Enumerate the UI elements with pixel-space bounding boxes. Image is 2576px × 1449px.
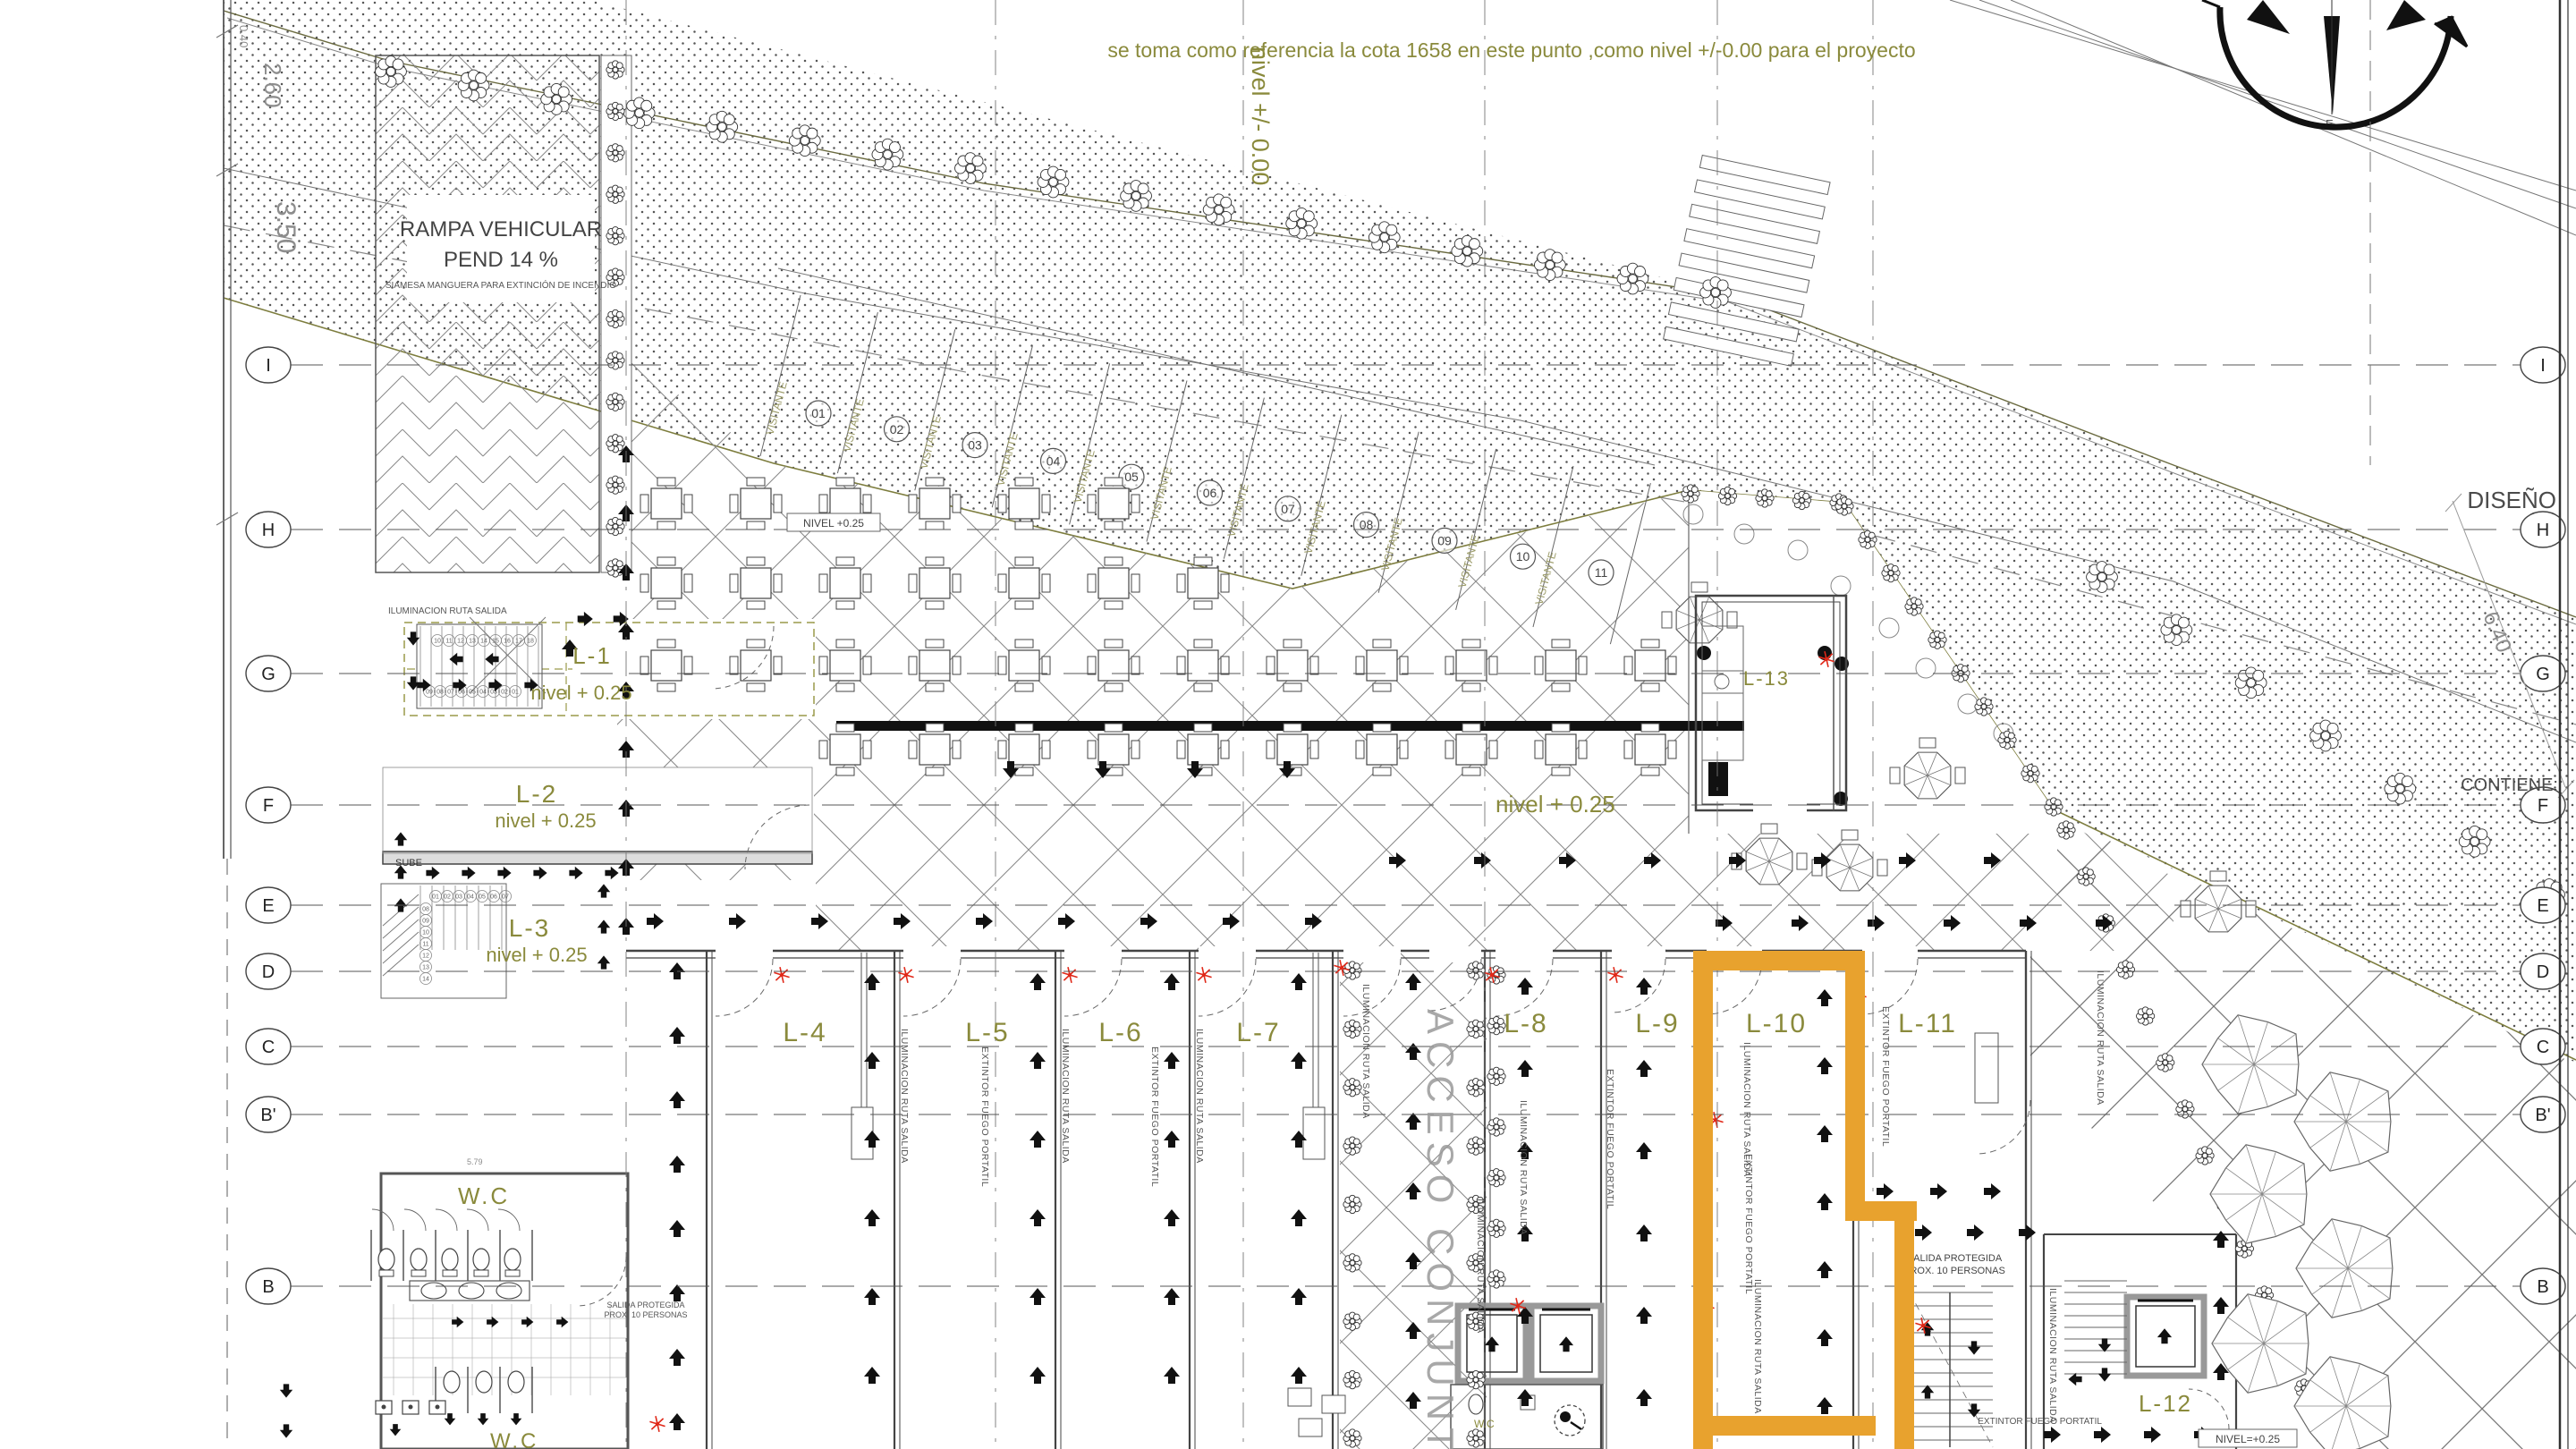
svg-text:02: 02 <box>890 422 904 436</box>
dim-260: 2.60 <box>259 63 286 108</box>
ilum-l1-note: ILUMINACION RUTA SALIDA <box>388 606 507 616</box>
svg-text:01: 01 <box>512 690 519 696</box>
svg-text:11: 11 <box>422 942 428 948</box>
ramp-label-2: PEND 14 % <box>444 248 558 272</box>
svg-text:L-8: L-8 <box>1504 1009 1547 1038</box>
svg-text:09: 09 <box>426 690 433 696</box>
svg-text:08: 08 <box>422 907 429 913</box>
nivel-box-2: NIVEL=+0.25 <box>2199 1429 2297 1447</box>
svg-text:I: I <box>2540 356 2546 376</box>
svg-text:L-12: L-12 <box>2139 1390 2192 1417</box>
svg-text:EXTINTOR FUEGO PORTATIL: EXTINTOR FUEGO PORTATIL <box>979 1046 990 1187</box>
svg-text:ILUMINACION RUTA SALIDA: ILUMINACION RUTA SALIDA <box>1060 1029 1071 1164</box>
svg-text:ILUMINACION RUTA SALIDA: ILUMINACION RUTA SALIDA <box>1475 1199 1486 1334</box>
svg-text:nivel + 0.25: nivel + 0.25 <box>486 944 587 966</box>
highlighted-unit-L-10-border <box>1693 1416 1876 1436</box>
svg-text:04: 04 <box>467 894 474 901</box>
svg-text:EXTINTOR FUEGO PORTATIL: EXTINTOR FUEGO PORTATIL <box>1149 1046 1160 1187</box>
svg-text:ILUMINACION RUTA SALIDA: ILUMINACION RUTA SALIDA <box>1360 984 1371 1119</box>
svg-text:07: 07 <box>502 894 509 901</box>
svg-text:ILUMINACION RUTA SALIDA: ILUMINACION RUTA SALIDA <box>1752 1279 1763 1414</box>
acceso-conjunto-label: ACCESO CONJUNTO <box>1419 1009 1462 1449</box>
unit-label-L-9: L-9 <box>1635 1009 1679 1038</box>
svg-text:L-1: L-1 <box>572 642 612 669</box>
svg-text:02: 02 <box>444 894 451 901</box>
svg-text:11: 11 <box>1595 565 1608 580</box>
svg-text:01: 01 <box>811 406 826 420</box>
svg-text:C: C <box>262 1038 275 1057</box>
unit-label-L-13: L-13 <box>1743 667 1790 690</box>
svg-text:10: 10 <box>1516 549 1530 563</box>
svg-text:05: 05 <box>479 894 486 901</box>
svg-text:13: 13 <box>469 639 476 645</box>
svg-text:03: 03 <box>968 438 982 453</box>
salida-protegida-1a: SALIDA PROTEGIDA <box>1907 1253 2003 1264</box>
svg-text:EXTINTOR FUEGO PORTATIL: EXTINTOR FUEGO PORTATIL <box>1743 1154 1754 1294</box>
sube-label: SUBE <box>395 858 422 869</box>
svg-text:D: D <box>2537 962 2549 982</box>
svg-text:12: 12 <box>457 639 464 645</box>
svg-text:18: 18 <box>527 639 534 645</box>
site-plan-drawing: 01VISITANTE02VISITANTE03VISITANTE04VISIT… <box>0 0 2576 1449</box>
dim-350: 3.50 <box>271 201 301 253</box>
unit-label-L-8: L-8 <box>1504 1009 1547 1038</box>
diseno-label: DISEÑO <box>2467 487 2556 513</box>
svg-text:EXTINTOR FUEGO PORTATIL: EXTINTOR FUEGO PORTATIL <box>1880 1006 1891 1147</box>
svg-text:NIVEL +0.25: NIVEL +0.25 <box>803 517 864 530</box>
svg-text:11: 11 <box>445 639 452 645</box>
svg-text:ILUMINACION RUTA SALIDA: ILUMINACION RUTA SALIDA <box>1518 1100 1529 1235</box>
nivel-vertical-label: nivel +/- 0.00 <box>1247 47 1274 185</box>
svg-text:05: 05 <box>469 690 476 696</box>
svg-text:H: H <box>2537 521 2549 540</box>
svg-text:05: 05 <box>1124 470 1139 484</box>
svg-text:ILUMINACION RUTA SALIDA: ILUMINACION RUTA SALIDA <box>1194 1029 1205 1164</box>
svg-text:G: G <box>261 665 275 684</box>
svg-text:06: 06 <box>1203 486 1217 500</box>
floor-plan-sheet: 01VISITANTE02VISITANTE03VISITANTE04VISIT… <box>0 0 2576 1449</box>
svg-text:B': B' <box>260 1106 275 1125</box>
salida-protegida-1b: PROX. 10 PERSONAS <box>1903 1266 2005 1276</box>
dim-579: 5.79 <box>467 1157 483 1166</box>
svg-text:15: 15 <box>492 639 499 645</box>
unit-label-L-12: L-12 <box>2139 1390 2192 1417</box>
svg-text:L-11: L-11 <box>1898 1009 1957 1038</box>
svg-text:08: 08 <box>436 690 444 696</box>
svg-text:14: 14 <box>480 639 487 645</box>
compass-icon <box>2202 0 2467 465</box>
svg-text:04: 04 <box>1046 453 1061 468</box>
svg-text:L-9: L-9 <box>1635 1009 1679 1038</box>
svg-text:B: B <box>2537 1277 2548 1297</box>
svg-text:D: D <box>262 962 275 982</box>
svg-text:16: 16 <box>504 639 511 645</box>
svg-text:W.C: W.C <box>1474 1418 1495 1430</box>
svg-text:F: F <box>2538 796 2548 816</box>
highlighted-unit-L-10-border <box>1693 951 1713 1449</box>
unit-label-L-5: L-5 <box>965 1018 1009 1047</box>
svg-text:L-13: L-13 <box>1743 667 1790 690</box>
svg-text:L-6: L-6 <box>1098 1018 1142 1047</box>
svg-text:E: E <box>262 896 274 916</box>
dim-040: 0.40 <box>237 25 250 47</box>
svg-text:09: 09 <box>1437 533 1452 547</box>
svg-text:B': B' <box>2535 1106 2550 1125</box>
unit-label-L-6: L-6 <box>1098 1018 1142 1047</box>
svg-text:14: 14 <box>422 977 429 983</box>
svg-text:L-10: L-10 <box>1746 1009 1807 1038</box>
svg-text:04: 04 <box>479 690 487 696</box>
svg-text:I: I <box>266 356 271 376</box>
unit-label-L-4: L-4 <box>783 1018 826 1047</box>
svg-text:C: C <box>2537 1038 2549 1057</box>
svg-text:ILUMINACION RUTA SALIDA: ILUMINACION RUTA SALIDA <box>2095 970 2106 1106</box>
wc-label-lower: W.C <box>490 1429 538 1449</box>
extintor-l12-note: EXTINTOR FUEGO PORTATIL <box>1978 1417 2102 1427</box>
svg-text:F: F <box>263 796 274 816</box>
ramp-siamesa-note: SIAMESA MANGUERA PARA EXTINCIÓN DE INCEN… <box>386 279 616 291</box>
svg-text:09: 09 <box>422 919 429 925</box>
ramp-label-1: RAMPA VEHICULAR <box>400 217 602 241</box>
reference-note: se toma como referencia la cota 1658 en … <box>1107 38 1915 62</box>
svg-text:07: 07 <box>447 690 454 696</box>
svg-text:L-3: L-3 <box>509 914 550 942</box>
svg-text:NIVEL=+0.25: NIVEL=+0.25 <box>2216 1433 2280 1445</box>
svg-text:06: 06 <box>490 894 497 901</box>
svg-text:ILUMINACION RUTA SALIDA: ILUMINACION RUTA SALIDA <box>2047 1288 2058 1423</box>
salida-protegida-2a: SALIDA PROTEGIDA <box>606 1301 684 1309</box>
svg-text:nivel + 0.25: nivel + 0.25 <box>495 809 596 832</box>
svg-text:L-2: L-2 <box>516 780 557 808</box>
svg-text:G: G <box>2536 665 2550 684</box>
svg-text:H: H <box>262 521 275 540</box>
svg-text:nivel + 0.25: nivel + 0.25 <box>530 682 631 704</box>
highlighted-unit-L-10-border <box>1894 1201 1914 1449</box>
svg-text:L-4: L-4 <box>783 1018 826 1047</box>
contiene-label: CONTIENE: <box>2461 775 2558 795</box>
svg-text:ILUMINACION RUTA SALIDA: ILUMINACION RUTA SALIDA <box>899 1029 910 1164</box>
svg-text:E: E <box>2537 896 2548 916</box>
svg-text:03: 03 <box>455 894 462 901</box>
highlighted-unit-L-10-border <box>1845 951 1865 1219</box>
svg-text:12: 12 <box>422 953 429 960</box>
svg-text:10: 10 <box>434 639 441 645</box>
unit-label-L-11: L-11 <box>1898 1009 1957 1038</box>
svg-text:L-5: L-5 <box>965 1018 1009 1047</box>
svg-text:EXTINTOR FUEGO PORTATIL: EXTINTOR FUEGO PORTATIL <box>1605 1069 1615 1209</box>
svg-text:L-7: L-7 <box>1236 1018 1280 1047</box>
plaza-nivel-label: nivel + 0.25 <box>1496 791 1615 818</box>
unit-label-L-10: L-10 <box>1746 1009 1807 1038</box>
svg-text:17: 17 <box>515 639 522 645</box>
svg-text:01: 01 <box>432 894 439 901</box>
svg-text:02: 02 <box>501 690 508 696</box>
wc-label-upper: W.C <box>458 1182 510 1209</box>
highlighted-unit-L-10-border <box>1693 951 1865 970</box>
svg-text:B: B <box>262 1277 274 1297</box>
svg-text:13: 13 <box>422 965 429 971</box>
salida-protegida-2b: PROX. 10 PERSONAS <box>604 1310 687 1319</box>
unit-label-L-7: L-7 <box>1236 1018 1280 1047</box>
svg-text:10: 10 <box>422 930 429 936</box>
nivel-box-1: NIVEL +0.25 <box>787 513 880 531</box>
svg-text:07: 07 <box>1281 502 1295 516</box>
